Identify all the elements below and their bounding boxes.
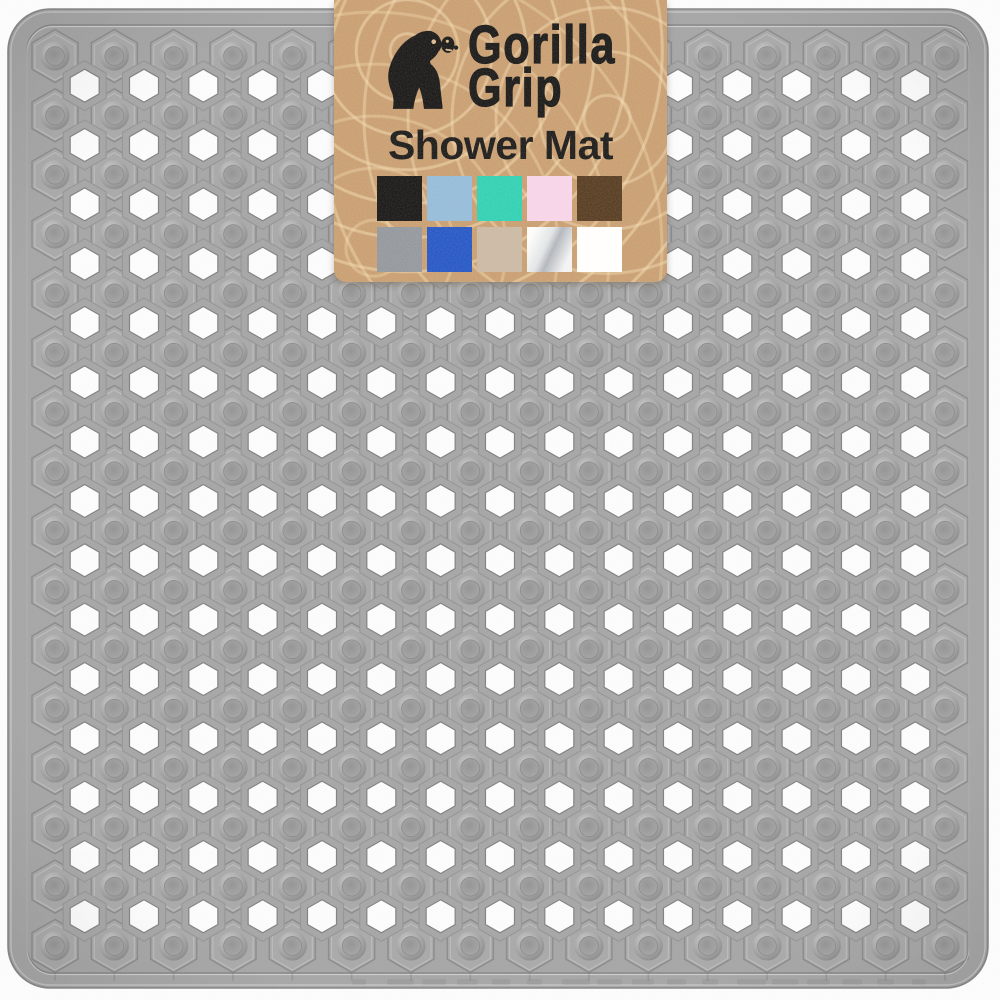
color-swatch-royal-blue <box>427 227 472 272</box>
brand-wordmark: Gorilla Grip <box>468 24 616 110</box>
color-swatch-turquoise <box>477 176 522 221</box>
color-swatch-silver <box>527 227 572 272</box>
gorilla-chin-dot <box>454 45 458 49</box>
color-swatch-beige <box>477 227 522 272</box>
color-swatch-grid <box>377 176 622 272</box>
color-swatch-light-blue <box>427 176 472 221</box>
color-swatch-light-pink <box>527 176 572 221</box>
gorilla-logo-icon <box>387 30 460 110</box>
color-swatch-black <box>377 176 422 221</box>
gorilla-eye <box>431 39 436 44</box>
product-label: Gorilla Grip Shower Mat <box>334 0 667 282</box>
product-photo: Gorilla Grip Shower Mat <box>0 0 1000 1000</box>
gorilla-nostril <box>446 40 449 43</box>
color-swatch-gray <box>377 227 422 272</box>
color-swatch-brown <box>577 176 622 221</box>
product-title: Shower Mat <box>334 122 667 168</box>
color-swatch-white <box>577 227 622 272</box>
